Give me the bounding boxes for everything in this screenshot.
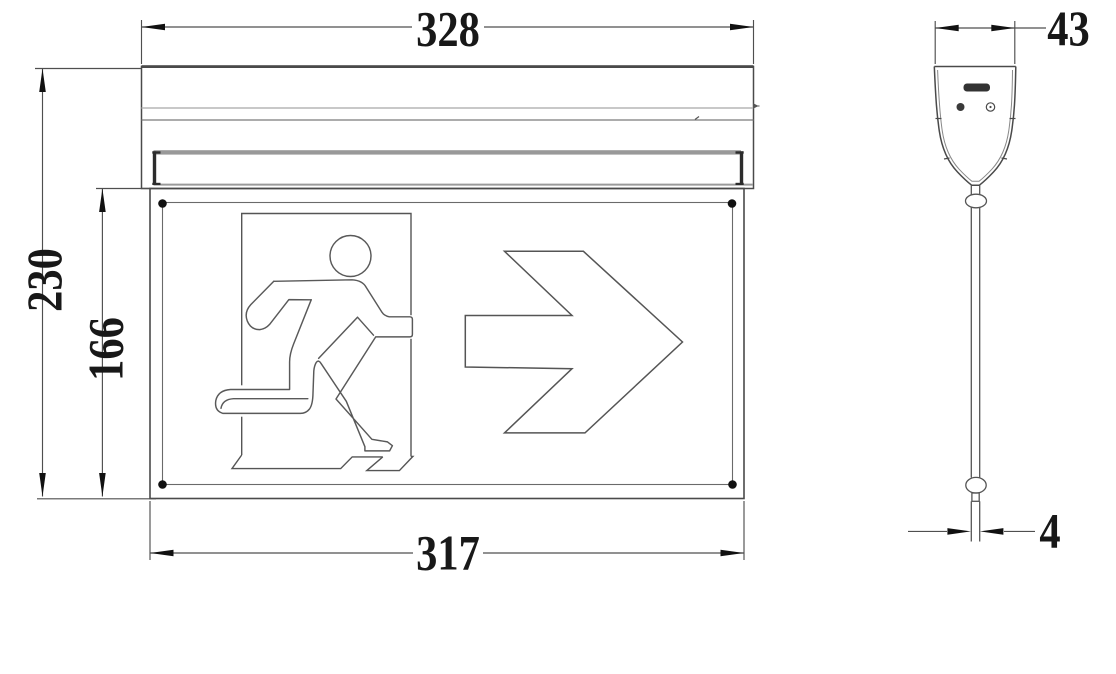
svg-text:43: 43 bbox=[1047, 2, 1089, 57]
svg-text:317: 317 bbox=[416, 526, 480, 581]
svg-text:166: 166 bbox=[79, 317, 134, 381]
svg-text:328: 328 bbox=[416, 2, 480, 57]
svg-text:4: 4 bbox=[1039, 504, 1060, 559]
svg-text:230: 230 bbox=[18, 248, 73, 312]
